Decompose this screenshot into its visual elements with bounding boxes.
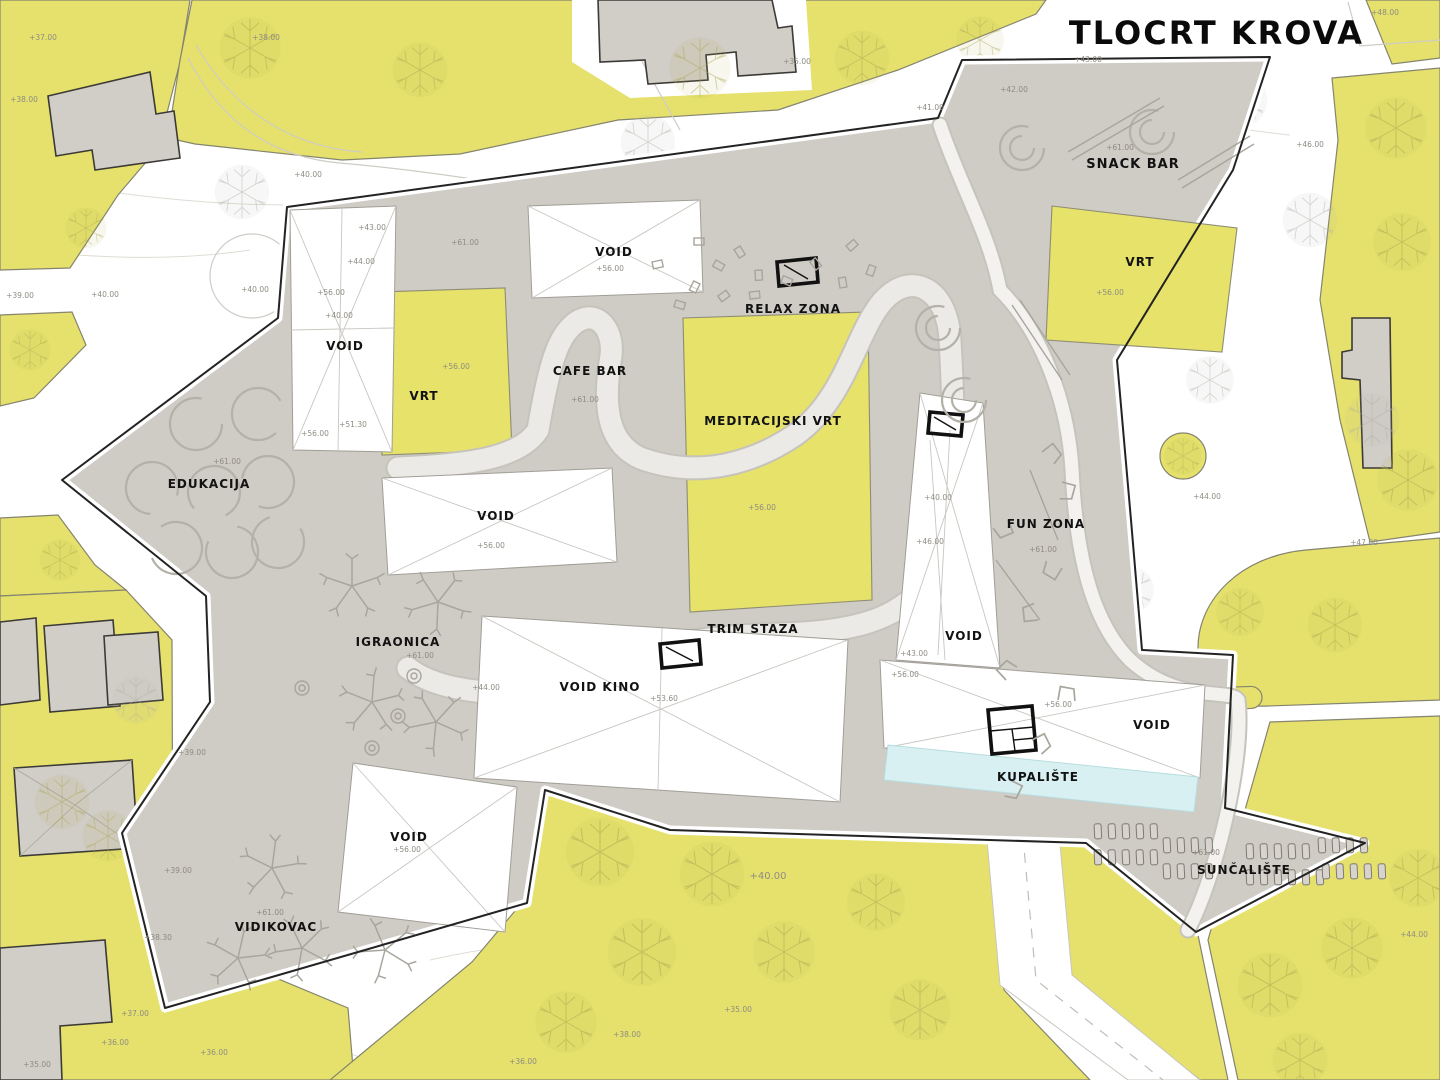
elevation-label: +56.00: [301, 429, 329, 438]
label-vrt-left: VRT: [409, 389, 438, 403]
elevation-label: +56.00: [891, 670, 919, 679]
elevation-label: +35.00: [724, 1005, 752, 1014]
elevation-label: +44.00: [472, 683, 500, 692]
elevation-label: +61.00: [406, 651, 434, 660]
elevation-label: +40.00: [241, 285, 269, 294]
tree-icon: [1321, 917, 1382, 978]
elevation-label: +40.00: [325, 311, 353, 320]
elevation-label: +46.00: [1296, 140, 1324, 149]
label-void-tower: VOID: [945, 629, 983, 643]
tree-icon: [608, 918, 676, 986]
elevation-label: +61.00: [451, 238, 479, 247]
lounger-icon: [1246, 844, 1254, 859]
lounger-icon: [1094, 824, 1102, 839]
elevation-label: +56.00: [442, 362, 470, 371]
tree-icon: [35, 775, 89, 829]
elevation-label: +48.00: [1371, 8, 1399, 17]
lounger-icon: [1318, 838, 1326, 853]
tree-icon: [66, 208, 107, 249]
tree-icon: [10, 330, 51, 371]
elevation-label: +36.00: [101, 1038, 129, 1047]
elevation-label: +46.00: [916, 537, 944, 546]
label-kupaliste: KUPALIŠTE: [997, 769, 1079, 784]
elevation-label: +39.00: [178, 748, 206, 757]
lounger-icon: [1260, 844, 1268, 859]
lounger-icon: [1177, 838, 1185, 853]
lounger-icon: [1177, 864, 1185, 879]
lounger-icon: [1364, 864, 1372, 879]
tree-icon: [1308, 598, 1362, 652]
elevation-label: +44.00: [1193, 492, 1221, 501]
tree-icon: [215, 165, 269, 219]
label-vrt-right: VRT: [1125, 255, 1154, 269]
elevation-label: +61.00: [213, 457, 241, 466]
lounger-icon: [1274, 844, 1282, 859]
building-bl-1: [0, 618, 40, 705]
tree-icon: [1373, 213, 1431, 271]
label-void-left: VOID: [326, 339, 364, 353]
elevation-label: +37.00: [29, 33, 57, 42]
lounger-icon: [1288, 844, 1296, 859]
elevation-label: +56.00: [1044, 700, 1072, 709]
elevation-label: +61.00: [256, 908, 284, 917]
lounger-icon: [1122, 850, 1130, 865]
elevation-label: +36.00: [509, 1057, 537, 1066]
roof-plan-drawing: SNACK BARVRTVOIDRELAX ZONACAFE BARMEDITA…: [0, 0, 1440, 1080]
elevation-label: +53.60: [650, 694, 678, 703]
elevation-label: +35.00: [783, 57, 811, 66]
elevation-label: +41.00: [916, 103, 944, 112]
label-edukacija: EDUKACIJA: [168, 477, 251, 491]
elevation-label: +36.00: [200, 1048, 228, 1057]
elevation-label: +44.00: [1400, 930, 1428, 939]
tree-icon: [1186, 356, 1234, 404]
elevation-label: +39.00: [6, 291, 34, 300]
tree-icon: [1164, 437, 1201, 474]
label-void-center: VOID: [477, 509, 515, 523]
elevation-label: +51.30: [339, 420, 367, 429]
elevation-label: +56.00: [1096, 288, 1124, 297]
label-suncaliste: SUNČALIŠTE: [1197, 862, 1291, 877]
elevation-label: +47.00: [1350, 538, 1378, 547]
lounger-icon: [1350, 864, 1358, 879]
label-vidikovac: VIDIKOVAC: [235, 920, 317, 934]
label-cafe-bar: CAFE BAR: [553, 364, 627, 378]
elevation-label: +56.00: [596, 264, 624, 273]
lounger-icon: [1378, 864, 1386, 879]
elevation-label: +40.00: [91, 290, 119, 299]
tree-icon: [680, 842, 745, 907]
tree-icon: [1377, 449, 1438, 510]
label-igraonica: IGRAONICA: [356, 635, 441, 649]
elevation-label: +43.00: [1074, 55, 1102, 64]
garden-vrt-right: [1046, 206, 1237, 352]
tree-icon: [847, 873, 905, 931]
elevation-label: +56.00: [748, 503, 776, 512]
label-meditacijski-vrt: MEDITACIJSKI VRT: [704, 414, 842, 428]
tree-icon: [1365, 97, 1426, 158]
elevation-label: +39.00: [164, 866, 192, 875]
tree-icon: [1216, 588, 1264, 636]
elevation-label: +61.00: [1192, 848, 1220, 857]
lounger-icon: [1302, 844, 1310, 859]
lounger-icon: [1150, 850, 1158, 865]
label-void-bottom: VOID: [390, 830, 428, 844]
elevation-label: +61.00: [571, 395, 599, 404]
drawing-title: TLOCRT KROVA: [1069, 14, 1364, 52]
elevation-label: +38.00: [10, 95, 38, 104]
elevation-label: +61.00: [1029, 545, 1057, 554]
lounger-icon: [1122, 824, 1130, 839]
label-void-kino: VOID KINO: [560, 680, 641, 694]
tree-icon: [40, 540, 81, 581]
tree-icon: [1238, 953, 1303, 1018]
lounger-icon: [1108, 824, 1116, 839]
elevation-label: +44.00: [347, 257, 375, 266]
void-bottom-shape: [338, 763, 517, 932]
label-trim-staza: TRIM STAZA: [707, 622, 798, 636]
lounger-icon: [1136, 824, 1144, 839]
label-snack-bar: SNACK BAR: [1086, 157, 1179, 172]
tree-icon: [669, 37, 730, 98]
lounger-icon: [1163, 838, 1171, 853]
elevation-label: +43.00: [900, 649, 928, 658]
lounger-icon: [1332, 838, 1340, 853]
tree-icon: [835, 31, 889, 85]
elevation-label: +35.00: [23, 1060, 51, 1069]
elevation-label: +38.00: [252, 33, 280, 42]
tree-icon: [112, 676, 160, 724]
lounger-icon: [1150, 824, 1158, 839]
tree-icon: [1345, 393, 1399, 447]
elevation-label: +56.00: [477, 541, 505, 550]
tree-icon: [1283, 193, 1337, 247]
elevation-label: +38.00: [613, 1030, 641, 1039]
label-relax-zona: RELAX ZONA: [745, 302, 841, 316]
elevation-label: +40.00: [924, 493, 952, 502]
elevation-label: +43.00: [358, 223, 386, 232]
label-void-pool: VOID: [1133, 718, 1171, 732]
elevation-label: +61.00: [1106, 143, 1134, 152]
elevation-label: +38.30: [144, 933, 172, 942]
elevation-label: +56.00: [393, 845, 421, 854]
elevation-label: +42.00: [1000, 85, 1028, 94]
lounger-icon: [1336, 864, 1344, 879]
tree-icon: [535, 991, 596, 1052]
elevation-label: +40.00: [294, 170, 322, 179]
label-void-top: VOID: [595, 245, 633, 259]
void-left-shape: [290, 206, 396, 452]
lounger-icon: [1163, 864, 1171, 879]
tree-icon: [566, 818, 634, 886]
elevation-label: +37.00: [121, 1009, 149, 1018]
lounger-icon: [1136, 850, 1144, 865]
label-fun-zona: FUN ZONA: [1007, 517, 1085, 531]
tree-icon: [889, 979, 950, 1040]
tree-icon: [753, 921, 814, 982]
tree-icon: [393, 43, 447, 97]
elevation-label: +56.00: [317, 288, 345, 297]
garden-vrt-left: [378, 288, 512, 455]
tree-icon: [219, 17, 280, 78]
plan-canvas: SNACK BARVRTVOIDRELAX ZONACAFE BARMEDITA…: [0, 0, 1440, 1080]
elevation-label: +40.00: [749, 871, 786, 882]
